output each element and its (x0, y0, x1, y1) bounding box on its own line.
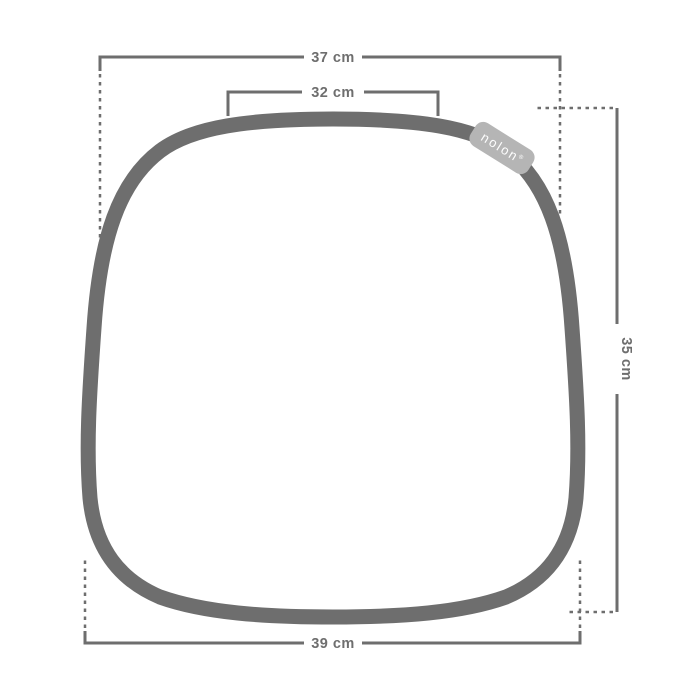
dimension-side: 35 cm (534, 108, 634, 612)
dimension-side-label: 35 cm (618, 337, 634, 381)
brand-tag: nolon® (466, 119, 538, 178)
dimension-top-inner: 32 cm (228, 85, 438, 116)
dimension-bottom-label: 39 cm (311, 636, 355, 652)
diagram-canvas: 37 cm 32 cm 35 cm 39 cm nolon® (0, 0, 700, 700)
seat-outline-shape (88, 119, 578, 617)
dimension-top-outer-label: 37 cm (311, 50, 355, 66)
dimension-top-inner-label: 32 cm (311, 85, 355, 101)
seat-cushion-dimension-diagram: 37 cm 32 cm 35 cm 39 cm nolon® (0, 0, 700, 700)
